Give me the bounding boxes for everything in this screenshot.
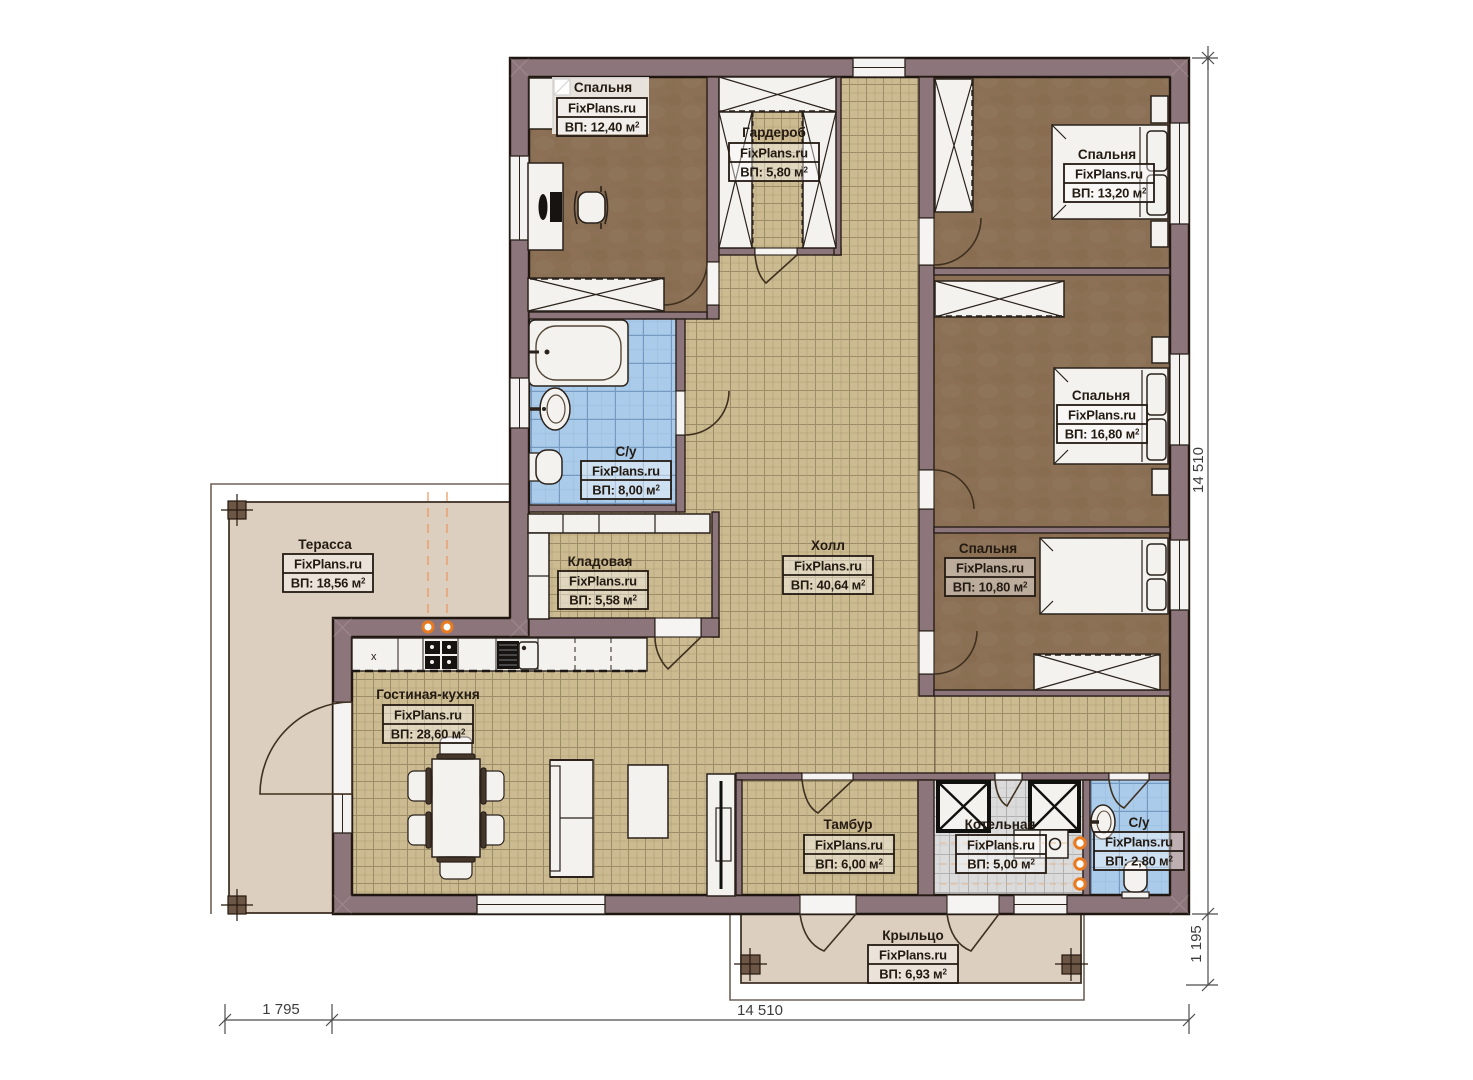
- svg-text:Тамбур: Тамбур: [824, 817, 873, 832]
- svg-text:FixPlans.ru: FixPlans.ru: [568, 101, 636, 116]
- svg-text:FixPlans.ru: FixPlans.ru: [967, 838, 1035, 853]
- svg-text:ВП: 8,00 м2: ВП: 8,00 м2: [592, 483, 660, 498]
- svg-text:1 195: 1 195: [1188, 925, 1205, 963]
- svg-text:FixPlans.ru: FixPlans.ru: [294, 557, 362, 572]
- svg-text:ВП: 40,64 м2: ВП: 40,64 м2: [791, 578, 866, 593]
- svg-text:FixPlans.ru: FixPlans.ru: [794, 559, 862, 574]
- svg-text:ВП: 6,00 м2: ВП: 6,00 м2: [815, 857, 883, 872]
- svg-text:Гостиная-кухня: Гостиная-кухня: [376, 687, 479, 702]
- svg-text:Холл: Холл: [811, 538, 845, 553]
- svg-text:Спальня: Спальня: [959, 541, 1017, 556]
- svg-text:14 510: 14 510: [737, 1002, 783, 1019]
- svg-text:ВП: 2,80 м2: ВП: 2,80 м2: [1105, 854, 1173, 869]
- svg-text:FixPlans.ru: FixPlans.ru: [592, 464, 660, 479]
- svg-text:Котельная: Котельная: [965, 817, 1036, 832]
- svg-text:Гардероб: Гардероб: [742, 125, 806, 140]
- svg-text:FixPlans.ru: FixPlans.ru: [815, 838, 883, 853]
- svg-text:FixPlans.ru: FixPlans.ru: [394, 708, 462, 723]
- svg-text:FixPlans.ru: FixPlans.ru: [1068, 408, 1136, 423]
- svg-text:ВП: 16,80 м2: ВП: 16,80 м2: [1065, 427, 1140, 442]
- svg-text:ВП: 18,56 м2: ВП: 18,56 м2: [291, 576, 366, 591]
- svg-text:FixPlans.ru: FixPlans.ru: [1075, 167, 1143, 182]
- svg-text:Спальня: Спальня: [574, 80, 632, 95]
- svg-text:Кладовая: Кладовая: [568, 554, 633, 569]
- svg-text:ВП: 28,60 м2: ВП: 28,60 м2: [391, 727, 466, 742]
- svg-text:14 510: 14 510: [1190, 447, 1207, 493]
- svg-text:С/у: С/у: [615, 444, 637, 459]
- svg-text:FixPlans.ru: FixPlans.ru: [956, 561, 1024, 576]
- svg-text:FixPlans.ru: FixPlans.ru: [879, 948, 947, 963]
- svg-text:Спальня: Спальня: [1078, 147, 1136, 162]
- svg-text:FixPlans.ru: FixPlans.ru: [1105, 835, 1173, 850]
- svg-text:ВП: 6,93 м2: ВП: 6,93 м2: [879, 967, 947, 982]
- svg-text:ВП: 5,00 м2: ВП: 5,00 м2: [967, 857, 1035, 872]
- svg-text:FixPlans.ru: FixPlans.ru: [740, 146, 808, 161]
- svg-text:Крыльцо: Крыльцо: [882, 928, 943, 943]
- svg-text:FixPlans.ru: FixPlans.ru: [569, 574, 637, 589]
- svg-text:ВП: 5,58 м2: ВП: 5,58 м2: [569, 593, 637, 608]
- svg-text:Спальня: Спальня: [1072, 388, 1130, 403]
- svg-text:1 795: 1 795: [262, 1001, 300, 1018]
- svg-text:x: x: [371, 651, 377, 663]
- svg-text:ВП: 12,40 м2: ВП: 12,40 м2: [565, 120, 640, 135]
- svg-text:ВП: 10,80 м2: ВП: 10,80 м2: [953, 580, 1028, 595]
- svg-text:Терасса: Терасса: [298, 537, 352, 552]
- svg-text:ВП: 13,20 м2: ВП: 13,20 м2: [1072, 186, 1147, 201]
- svg-text:ВП: 5,80 м2: ВП: 5,80 м2: [740, 165, 808, 180]
- svg-text:С/у: С/у: [1128, 815, 1150, 830]
